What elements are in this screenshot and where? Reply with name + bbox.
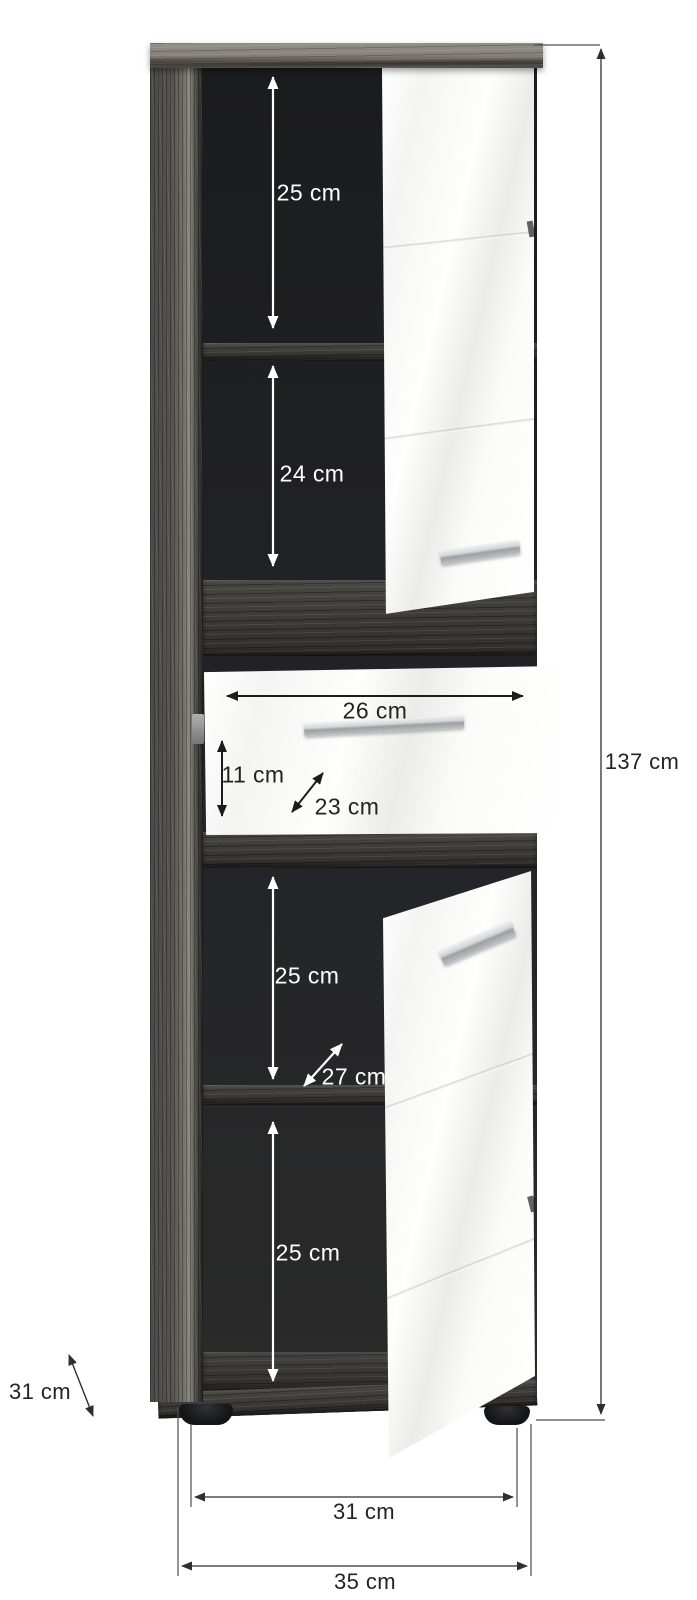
dim-label-bottom-shelf: 25 cm	[276, 1242, 341, 1265]
drawer	[190, 660, 570, 840]
upper-door	[382, 63, 534, 615]
upper-door-groove-1	[367, 222, 624, 252]
upper-door-groove-2	[368, 406, 625, 443]
cabinet-top-panel	[150, 43, 543, 68]
drawer-front	[204, 666, 561, 835]
upper-door-handle	[439, 540, 520, 565]
lower-door-groove-1	[375, 1022, 619, 1113]
dim-label-drawer-width: 26 cm	[343, 700, 408, 723]
lower-door	[383, 871, 535, 1461]
dim-label-top-shelf: 25 cm	[277, 182, 342, 205]
dim-label-total-width: 35 cm	[334, 1571, 396, 1593]
product-dimension-diagram: 25 cm 24 cm 26 cm 11 cm 23 cm 25 cm 27 c…	[0, 0, 697, 1600]
dim-label-drawer-height: 11 cm	[222, 764, 285, 787]
lower-door-handle	[438, 920, 516, 965]
drawer-runner	[192, 714, 204, 744]
dim-label-second-shelf: 24 cm	[280, 463, 345, 486]
dim-line-side-depth	[69, 1355, 93, 1416]
lower-door-groove-2	[377, 1205, 618, 1305]
dim-label-drawer-depth: 23 cm	[315, 796, 380, 819]
dim-label-third-shelf: 25 cm	[275, 965, 340, 988]
cabinet-foot-right	[484, 1406, 530, 1425]
dim-label-feet-span: 31 cm	[333, 1501, 395, 1523]
dim-label-comp-depth: 27 cm	[322, 1066, 387, 1089]
cabinet-foot-left	[179, 1404, 233, 1425]
dim-label-side-depth: 31 cm	[9, 1381, 71, 1403]
dim-label-total-height: 137 cm	[605, 751, 680, 773]
